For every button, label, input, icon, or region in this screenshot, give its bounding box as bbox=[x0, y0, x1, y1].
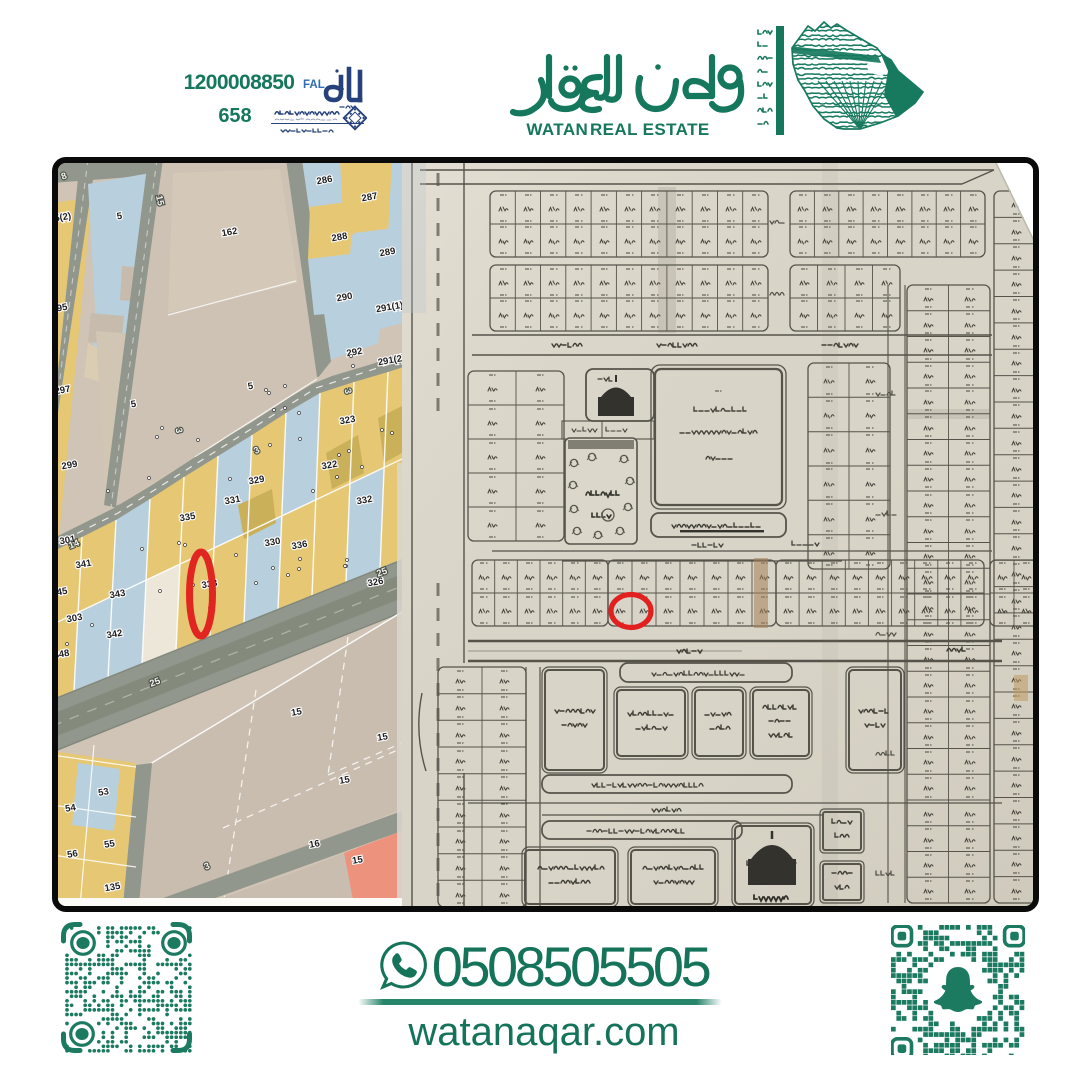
svg-text:FAL: FAL bbox=[303, 79, 325, 91]
svg-text:WATAN REAL ESTATE: WATAN REAL ESTATE bbox=[526, 120, 709, 139]
